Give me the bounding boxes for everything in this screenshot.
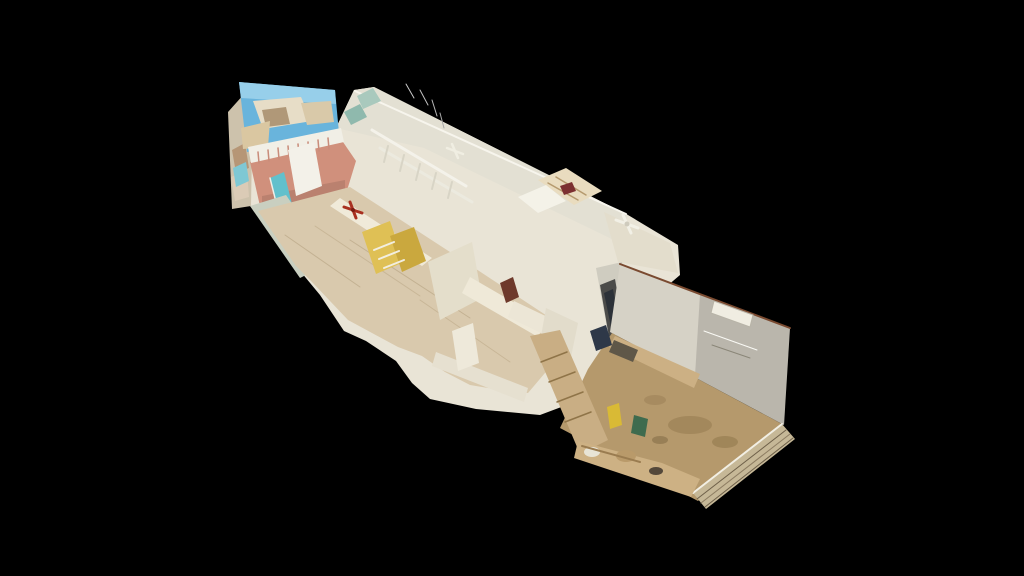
dollhouse-model xyxy=(0,0,1024,576)
scan-wisp-1 xyxy=(406,84,414,98)
green-equipment xyxy=(631,415,648,437)
clutter-dark xyxy=(649,467,663,475)
floor-stain-1 xyxy=(668,416,712,434)
floor-stain-4 xyxy=(652,436,668,444)
baluster-gap-2 xyxy=(268,150,269,161)
scan-wisp-2 xyxy=(420,90,428,105)
baluster-gap-3 xyxy=(278,148,279,159)
floor-stain-3 xyxy=(644,395,666,405)
red-fan-hub xyxy=(351,208,355,212)
dollhouse-viewer-canvas[interactable] xyxy=(0,0,1024,576)
floor-stain-2 xyxy=(712,436,738,448)
baluster-gap-8 xyxy=(328,138,329,149)
scan-wisp-3 xyxy=(432,100,437,116)
baluster-gap-7 xyxy=(318,140,319,151)
laundry-fan-hub xyxy=(625,222,630,227)
baluster-gap-1 xyxy=(258,152,259,163)
